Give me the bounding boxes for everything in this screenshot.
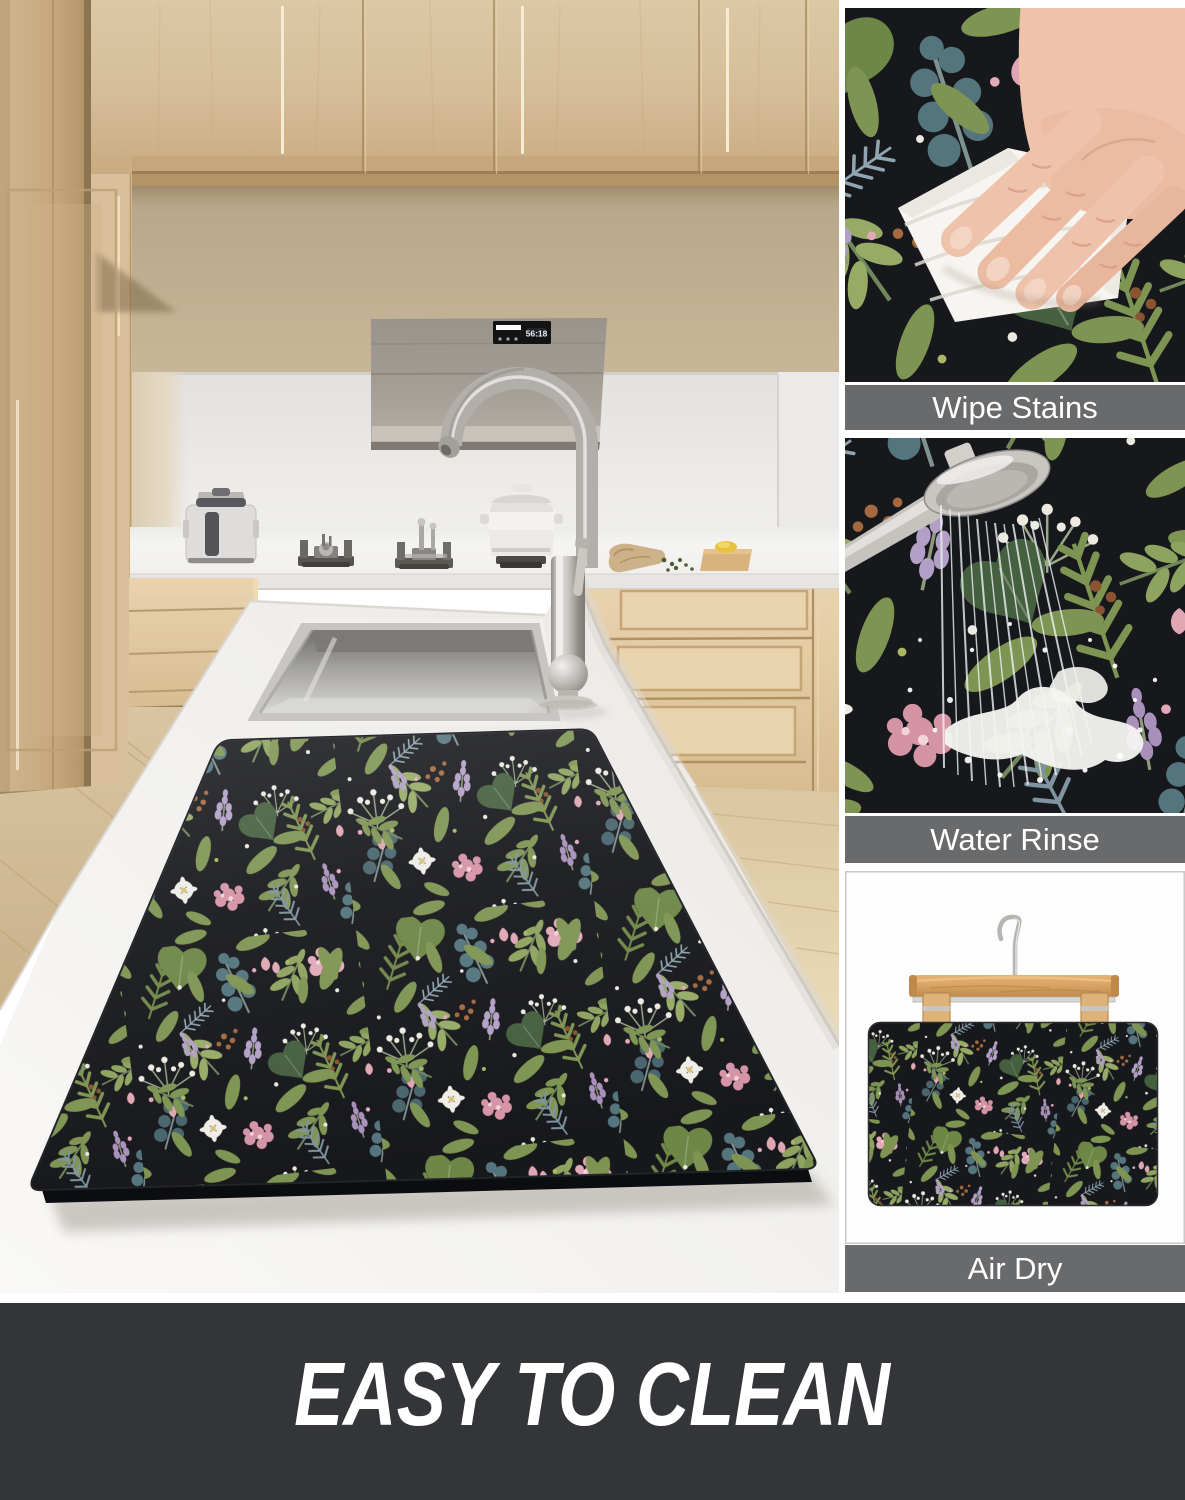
svg-text:Air Dry: Air Dry bbox=[968, 1251, 1063, 1286]
svg-text:Water Rinse: Water Rinse bbox=[930, 822, 1099, 857]
svg-text:Wipe Stains: Wipe Stains bbox=[932, 390, 1097, 425]
svg-text:56:18: 56:18 bbox=[526, 329, 548, 339]
svg-text:EASY TO CLEAN: EASY TO CLEAN bbox=[294, 1345, 891, 1445]
